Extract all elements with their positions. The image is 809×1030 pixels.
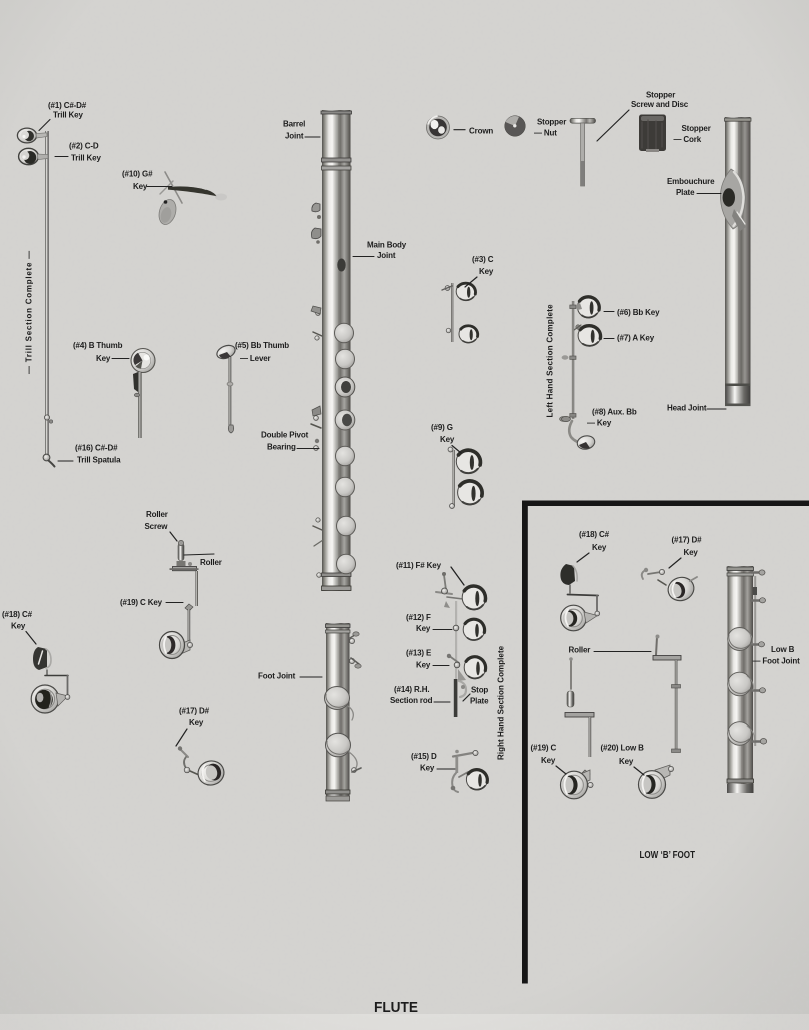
svg-text:Section rod: Section rod	[390, 696, 433, 705]
svg-text:Roller: Roller	[146, 510, 168, 519]
svg-text:Stopper: Stopper	[646, 91, 675, 100]
svg-text:Trill Spatula: Trill Spatula	[77, 456, 121, 465]
svg-text:Key: Key	[479, 267, 494, 276]
svg-text:(#19) C Key: (#19) C Key	[120, 598, 163, 607]
svg-text:Barrel: Barrel	[283, 120, 305, 129]
svg-text:Key: Key	[416, 624, 431, 633]
svg-text:Joint: Joint	[285, 132, 304, 141]
svg-text:(#15) D: (#15) D	[411, 752, 437, 761]
svg-text:Key: Key	[96, 354, 111, 363]
svg-text:Key: Key	[440, 435, 455, 444]
svg-text:Key: Key	[684, 548, 699, 557]
svg-text:Double Pivot: Double Pivot	[261, 431, 309, 440]
svg-text:(#12) F: (#12) F	[406, 613, 431, 622]
svg-text:Plate: Plate	[676, 188, 695, 197]
svg-text:Stopper: Stopper	[682, 124, 711, 133]
svg-text:Key: Key	[133, 182, 148, 191]
svg-text:Key: Key	[416, 661, 431, 670]
svg-text:(#11) F# Key: (#11) F# Key	[396, 561, 442, 570]
svg-text:Screw: Screw	[145, 522, 169, 531]
svg-text:Roller: Roller	[569, 646, 591, 655]
svg-text:(#7) A Key: (#7) A Key	[617, 334, 655, 343]
svg-text:Key: Key	[592, 543, 607, 552]
svg-text:— Key: — Key	[587, 419, 612, 428]
svg-text:Key: Key	[541, 756, 556, 765]
svg-text:Foot Joint: Foot Joint	[258, 672, 296, 681]
svg-text:(#14) R.H.: (#14) R.H.	[394, 685, 429, 694]
svg-text:Stop: Stop	[471, 686, 488, 695]
svg-text:Head Joint: Head Joint	[667, 404, 707, 413]
svg-text:LOW ‘B’ FOOT: LOW ‘B’ FOOT	[640, 850, 696, 861]
svg-text:FLUTE: FLUTE	[374, 999, 418, 1016]
svg-text:Stopper: Stopper	[537, 118, 566, 127]
svg-text:Key: Key	[11, 622, 26, 631]
svg-text:Low B: Low B	[771, 645, 795, 654]
svg-text:Trill Key: Trill Key	[71, 154, 101, 163]
svg-text:Joint: Joint	[377, 251, 396, 260]
svg-text:(#17) D#: (#17) D#	[672, 536, 703, 545]
svg-text:(#19) C: (#19) C	[531, 744, 557, 753]
svg-text:(#5) Bb Thumb: (#5) Bb Thumb	[235, 341, 289, 350]
svg-text:Screw and Disc: Screw and Disc	[631, 100, 689, 109]
svg-text:Bearing: Bearing	[267, 443, 296, 452]
svg-text:(#8) Aux. Bb: (#8) Aux. Bb	[592, 408, 637, 417]
svg-text:Right Hand Section Complete: Right Hand Section Complete	[497, 645, 506, 760]
svg-text:Left Hand Section Complete: Left Hand Section Complete	[546, 304, 555, 418]
svg-text:(#1) C#-D#: (#1) C#-D#	[48, 101, 87, 110]
svg-text:Key: Key	[189, 718, 204, 727]
svg-text:(#9) G: (#9) G	[431, 423, 453, 432]
svg-text:— Foot Joint: — Foot Joint	[753, 657, 801, 666]
svg-text:(#4) B Thumb: (#4) B Thumb	[73, 341, 123, 350]
svg-text:Trill Key: Trill Key	[53, 111, 83, 120]
svg-text:(#3) C: (#3) C	[472, 255, 494, 264]
svg-text:— Nut: — Nut	[534, 129, 557, 138]
svg-text:— Cork: — Cork	[674, 135, 702, 144]
svg-text:(#2) C-D: (#2) C-D	[69, 142, 99, 151]
svg-text:Crown: Crown	[469, 127, 493, 136]
svg-text:Key: Key	[619, 757, 634, 766]
svg-text:Plate: Plate	[470, 697, 489, 706]
svg-text:(#18) C#: (#18) C#	[579, 530, 610, 539]
svg-text:Main Body: Main Body	[367, 241, 407, 250]
svg-text:(#6) Bb Key: (#6) Bb Key	[617, 308, 660, 317]
svg-text:Key: Key	[420, 764, 435, 773]
svg-text:— Lever: — Lever	[240, 354, 271, 363]
svg-text:(#13) E: (#13) E	[406, 649, 432, 658]
svg-text:(#17) D#: (#17) D#	[179, 707, 210, 716]
svg-text:(#18) C#: (#18) C#	[2, 610, 33, 619]
svg-text:Embouchure: Embouchure	[667, 177, 715, 186]
svg-text:(#16) C#-D#: (#16) C#-D#	[75, 444, 118, 453]
svg-text:(#10) G#: (#10) G#	[122, 170, 153, 179]
svg-text:Roller: Roller	[200, 558, 222, 567]
svg-text:— Trill Section Complete —: — Trill Section Complete —	[25, 251, 34, 374]
svg-text:(#20) Low B: (#20) Low B	[601, 744, 645, 753]
